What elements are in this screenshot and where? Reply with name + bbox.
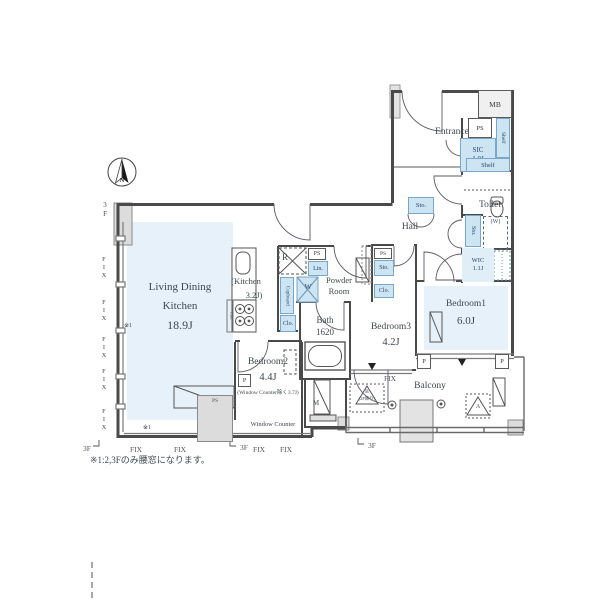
wic-box: WIC1.1J — [462, 248, 494, 282]
pillar-balcony-left: P — [417, 354, 431, 369]
refrigerator-mark: R — [278, 252, 292, 262]
floorplan-graphics — [0, 0, 606, 601]
bedroom2-note: (Window Counter除く3.7J) — [226, 390, 310, 396]
ldk-label-line1: Living Dining — [130, 281, 230, 294]
ps-box-entrance: PS — [468, 118, 492, 138]
fix-label-left-4: FIX — [100, 366, 107, 394]
bath-label: Bath — [301, 315, 349, 325]
fix-label-balcony: FIX — [380, 375, 400, 384]
fix-label-left-2: FIX — [100, 297, 107, 325]
ps-box-bedroom3: PS — [374, 248, 392, 259]
linen-box: Lin. — [308, 261, 328, 276]
hatch-b-note: (2F降り) — [350, 396, 384, 401]
bedroom3-size: 4.2J — [362, 337, 420, 349]
fix-label-left-1: FIX — [100, 254, 107, 282]
powder-room-label-line1: Powder — [318, 276, 360, 286]
fix-label-left-3: FIX — [100, 334, 107, 362]
footnote: ※1:2,3Fのみ腰窓になります。 — [90, 455, 330, 465]
floor-plan: Living Dining Kitchen 18.9J (Kitchen 3.2… — [0, 0, 606, 601]
hatch-a-mark: A — [470, 404, 486, 411]
bathtub — [305, 342, 345, 370]
fix-label-bottom-1: FIX — [126, 446, 146, 455]
meter-mark: M — [310, 399, 322, 407]
north-mark: N — [117, 178, 127, 185]
toilet-label: Toilet — [470, 200, 510, 211]
ref-mark-bottom: ※1 — [140, 425, 154, 432]
ref-mark-wall: ※1 — [121, 323, 135, 330]
bedroom1-label: Bedroom1 — [424, 299, 508, 310]
bedroom3-label: Bedroom3 — [362, 322, 420, 333]
floor-label-left: 3F — [101, 197, 109, 223]
fix-label-bottom-4: FIX — [276, 446, 296, 455]
closet-box-kitchen: Clo. — [280, 315, 296, 332]
floor-label-bottom-1: 3F — [78, 445, 96, 454]
bedroom1-size: 6.0J — [424, 315, 508, 328]
closet-strip-kitchen-side: Clo. — [227, 302, 234, 330]
window-counter-label: Window Counter — [244, 421, 302, 428]
ps-shaft-bottom: PS — [197, 395, 233, 442]
storage-box-bedroom3: Sto. — [374, 260, 394, 276]
pillar-bedroom2: P — [238, 374, 251, 387]
storage-box-hall: Sto. — [408, 197, 434, 214]
bedroom2-label: Bedroom2 — [234, 357, 302, 368]
ldk-size: 18.9J — [130, 319, 230, 333]
closet-box-bedroom3: Clo. — [374, 284, 394, 298]
washer-mark: W — [301, 283, 315, 292]
balcony-unit-box — [400, 400, 433, 442]
ldk-label-line2: Kitchen — [130, 300, 230, 313]
floor-label-bottom-2: 3F — [234, 444, 254, 453]
cupboard-strip: Cupboard — [280, 277, 294, 314]
balcony-label: Balcony — [402, 381, 458, 392]
ps-box-powder: PS — [308, 248, 326, 260]
meter-box: MB — [478, 90, 512, 118]
hall-label: Hall — [390, 222, 430, 233]
powder-room-label-line2: Room — [318, 287, 360, 297]
hatch-b-mark: B — [359, 389, 375, 395]
shelf-vertical: Shelf — [496, 118, 510, 158]
bath-size: 1620 — [301, 327, 349, 337]
pillar-balcony-right: P — [495, 354, 509, 369]
washer-space-optional: (W) — [483, 216, 508, 250]
storage-box-toilet: Sto. — [465, 215, 481, 247]
shelf-horizontal: Shelf — [466, 158, 510, 172]
kitchen-size: 3.2J) — [236, 291, 272, 301]
fix-label-left-5: FIX — [100, 406, 107, 434]
kitchen-label: (Kitchen — [220, 277, 272, 287]
floor-label-bottom-3: 3F — [362, 442, 382, 451]
fix-label-bottom-2: FIX — [170, 446, 190, 455]
